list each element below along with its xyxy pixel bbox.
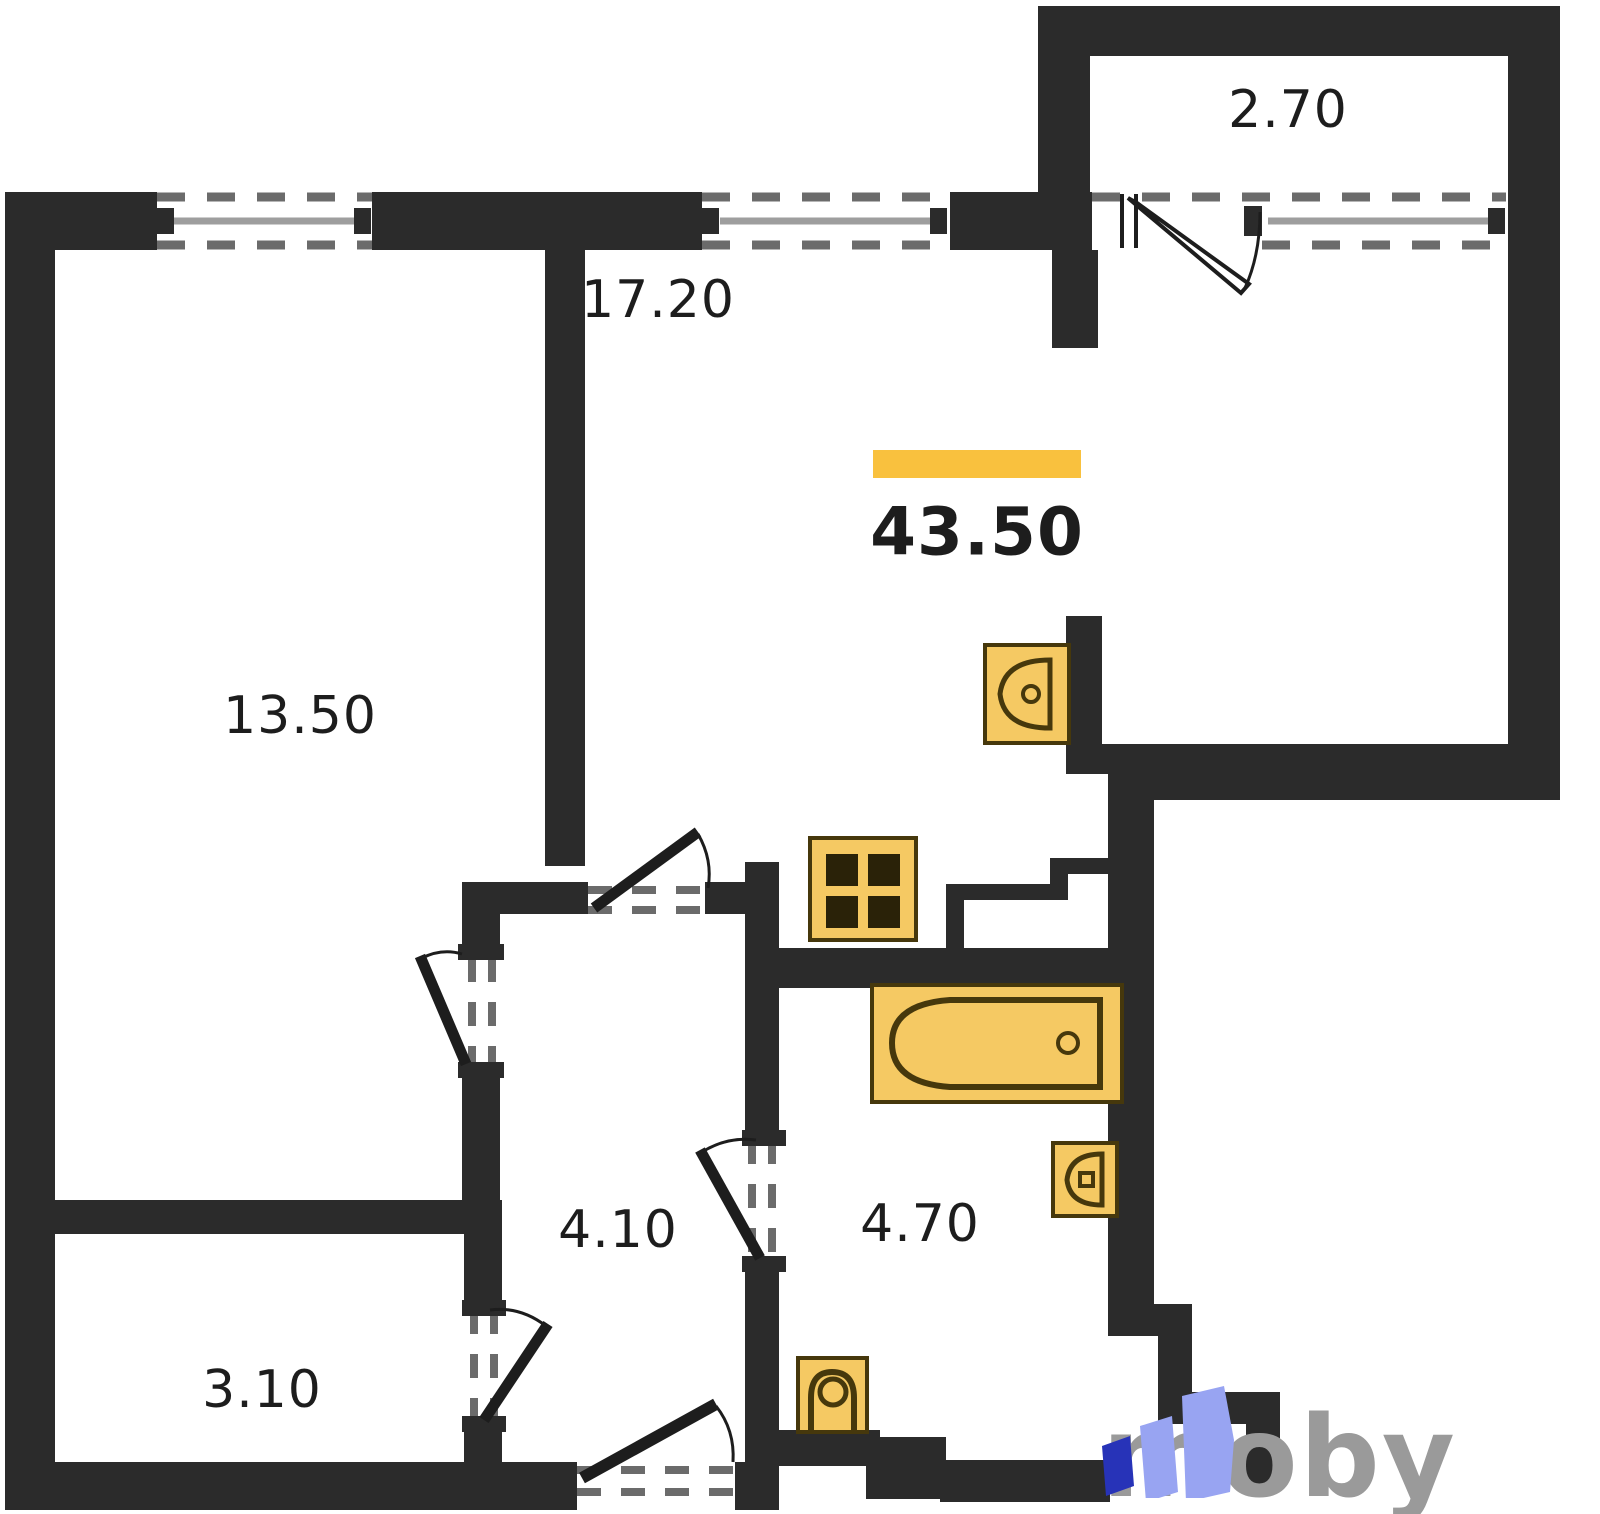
door-storage-icon xyxy=(462,1300,548,1432)
kitchen-sink-icon xyxy=(985,645,1069,743)
room-label-living: 17.20 xyxy=(581,270,735,330)
room-label-bathroom: 4.70 xyxy=(860,1194,980,1254)
moby-logo: moby xyxy=(1088,1378,1588,1514)
floor-plan: 43.50 17.20 13.50 2.70 4.10 4.70 3.10 mo… xyxy=(0,0,1600,1514)
room-label-storage: 3.10 xyxy=(202,1360,322,1420)
plan-symbols xyxy=(0,0,1600,1514)
room-label-balcony: 2.70 xyxy=(1228,80,1348,140)
window-living-icon xyxy=(702,197,950,245)
door-living-hall-icon xyxy=(588,832,709,910)
door-bathroom-icon xyxy=(700,1130,786,1272)
total-area-label: 43.50 xyxy=(870,494,1084,571)
stove-icon xyxy=(810,838,916,940)
moby-logo-icon xyxy=(1088,1378,1238,1498)
room-label-hallway: 4.10 xyxy=(558,1200,678,1260)
door-entrance-icon xyxy=(577,1404,735,1492)
toilet-icon xyxy=(798,1358,867,1432)
bathtub-icon xyxy=(872,985,1122,1102)
balcony-door-icon xyxy=(1122,194,1260,293)
door-bedroom-icon xyxy=(420,944,504,1078)
room-label-bedroom: 13.50 xyxy=(223,686,377,746)
window-bedroom-icon xyxy=(157,197,372,245)
washbasin-icon xyxy=(1053,1143,1117,1216)
total-area-bar xyxy=(873,450,1081,478)
